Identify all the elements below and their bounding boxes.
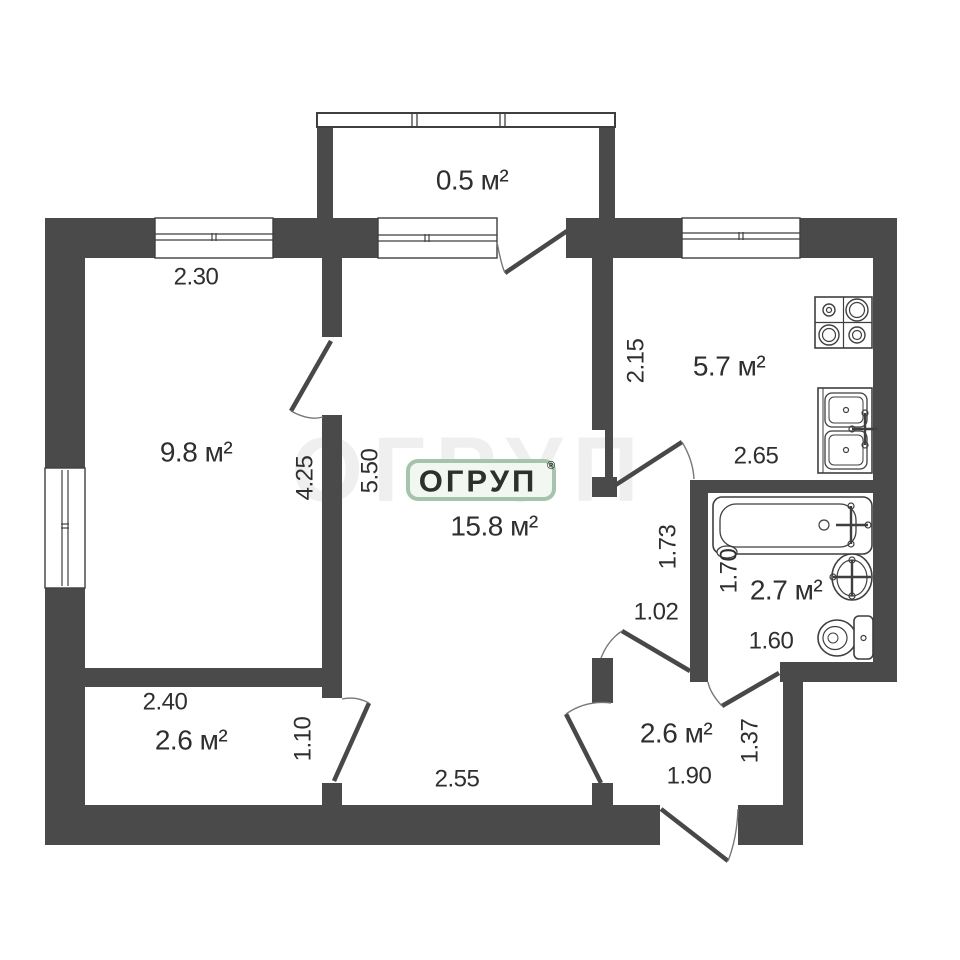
wall-balcony-right xyxy=(599,124,615,218)
wall-kitchen-left-block xyxy=(592,477,617,497)
bedroom-side-window xyxy=(45,468,85,588)
bathroom-door xyxy=(708,673,779,706)
entrance-door xyxy=(661,809,738,861)
living-area-label: 15.8 м² xyxy=(450,511,538,542)
wall-divider-stub xyxy=(322,783,342,805)
watermark-badge: ОГРУП ® xyxy=(408,460,555,499)
wall-bath-top xyxy=(690,480,897,493)
kitchen-area-label: 5.7 м² xyxy=(693,351,765,382)
bath-length-dim: 1.70 xyxy=(716,548,743,593)
storage-area-label: 2.6 м² xyxy=(155,725,227,756)
bedroom-door xyxy=(291,341,331,418)
nook-door xyxy=(601,631,690,671)
storage-width-dim: 2.40 xyxy=(143,689,188,716)
bedroom-width-dim: 2.30 xyxy=(174,264,219,291)
toilet-icon xyxy=(818,616,873,659)
wall-kitchen-left xyxy=(592,258,613,430)
watermark-registered-mark: ® xyxy=(547,460,555,472)
wall-divider-upper xyxy=(322,258,342,337)
storage-height-dim: 1.10 xyxy=(290,716,317,761)
bath-width-dim: 1.60 xyxy=(749,628,794,655)
hall-area-label: 2.6 м² xyxy=(640,718,712,749)
bath-area-label: 2.7 м² xyxy=(750,575,822,606)
nook-length-dim: 1.73 xyxy=(655,524,682,569)
wall-divider-lower xyxy=(322,415,342,698)
wall-kitchen-left-thin xyxy=(605,430,613,477)
bedroom-window xyxy=(155,218,273,258)
hall-width-dim: 1.90 xyxy=(667,763,712,790)
wall-top-1 xyxy=(45,218,155,258)
floor-plan-canvas: ОГРУП xyxy=(0,0,960,960)
wall-balcony-left xyxy=(317,124,333,218)
kitchen-wall-dim: 2.15 xyxy=(623,338,650,383)
living-hall-door xyxy=(566,702,611,783)
living-length-dim: 5.50 xyxy=(357,448,384,493)
wall-hall-stub-lower xyxy=(592,783,613,805)
wall-bath-bottom xyxy=(780,662,897,682)
living-balcony-window xyxy=(378,218,497,258)
wall-top-2 xyxy=(273,218,378,258)
balcony-area-label: 0.5 м² xyxy=(436,165,508,196)
kitchen-width-dim: 2.65 xyxy=(734,443,779,470)
kitchen-window xyxy=(682,218,800,258)
nook-width-dim: 1.02 xyxy=(634,599,679,626)
bedroom-area-label: 9.8 м² xyxy=(160,437,232,468)
balcony-glazing-window xyxy=(317,113,615,127)
kitchen-sink-icon xyxy=(818,388,877,473)
balcony-door xyxy=(497,231,567,273)
wall-right xyxy=(873,218,897,682)
floor-plan: ОГРУП xyxy=(0,0,960,960)
hall-height-dim: 1.37 xyxy=(737,718,764,763)
watermark-logo-text: ОГРУП xyxy=(419,464,538,499)
wall-storage-top xyxy=(85,668,322,687)
wall-hall-right xyxy=(783,682,803,845)
wall-hall-stub-upper xyxy=(592,658,613,703)
bedroom-length-dim: 4.25 xyxy=(292,455,319,500)
stove-icon xyxy=(815,297,872,348)
wall-bath-left xyxy=(690,480,708,682)
living-width-dim: 2.55 xyxy=(435,766,480,793)
wall-bottom xyxy=(45,805,660,845)
washbasin-icon xyxy=(830,554,872,600)
wall-top-3 xyxy=(566,218,682,258)
storage-door xyxy=(334,698,369,781)
